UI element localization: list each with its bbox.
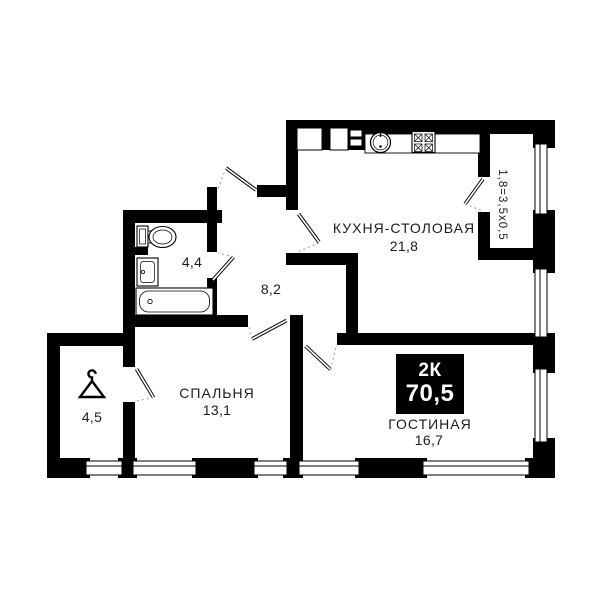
floor-plan-drawing xyxy=(0,0,600,600)
walls xyxy=(47,120,555,478)
balcony-dimension-label: 1,8=3,5x0,5 xyxy=(496,169,508,240)
bedroom-window-right xyxy=(254,461,287,475)
living-room-side-window xyxy=(535,369,547,442)
bedroom-window-left xyxy=(133,461,196,475)
bathroom-fixtures xyxy=(136,226,213,315)
living-room-label: ГОСТИНАЯ xyxy=(388,416,472,432)
apartment-type-badge: 2К 70,5 xyxy=(396,354,464,414)
kitchen-area: 21,8 xyxy=(390,238,418,254)
balcony-window-lower xyxy=(535,269,547,337)
washbasin-icon xyxy=(137,258,158,286)
apartment-total-area: 70,5 xyxy=(406,381,455,406)
kitchen-sink-icon xyxy=(371,132,391,153)
apartment-type: 2К xyxy=(418,361,441,381)
bathtub-icon xyxy=(136,288,213,315)
living-room-area: 16,7 xyxy=(415,432,443,448)
stove-icon xyxy=(412,132,435,153)
balcony-window-upper xyxy=(535,144,547,214)
wardrobe-window xyxy=(86,461,122,475)
bedroom-area: 13,1 xyxy=(203,402,231,418)
hanger-icon xyxy=(80,370,104,397)
kitchen-label: КУХНЯ-СТОЛОВАЯ xyxy=(333,220,475,236)
hallway-area: 8,2 xyxy=(261,281,281,297)
toilet-icon xyxy=(137,226,176,248)
bedroom-label: СПАЛЬНЯ xyxy=(179,385,254,401)
floor-plan: КУХНЯ-СТОЛОВАЯ 21,8 8,2 4,4 4,5 СПАЛЬНЯ … xyxy=(0,0,600,600)
living-room-window-right xyxy=(423,461,529,475)
bathroom-area: 4,4 xyxy=(182,254,202,270)
wardrobe-area: 4,5 xyxy=(82,409,102,425)
living-room-window-left xyxy=(299,461,359,475)
